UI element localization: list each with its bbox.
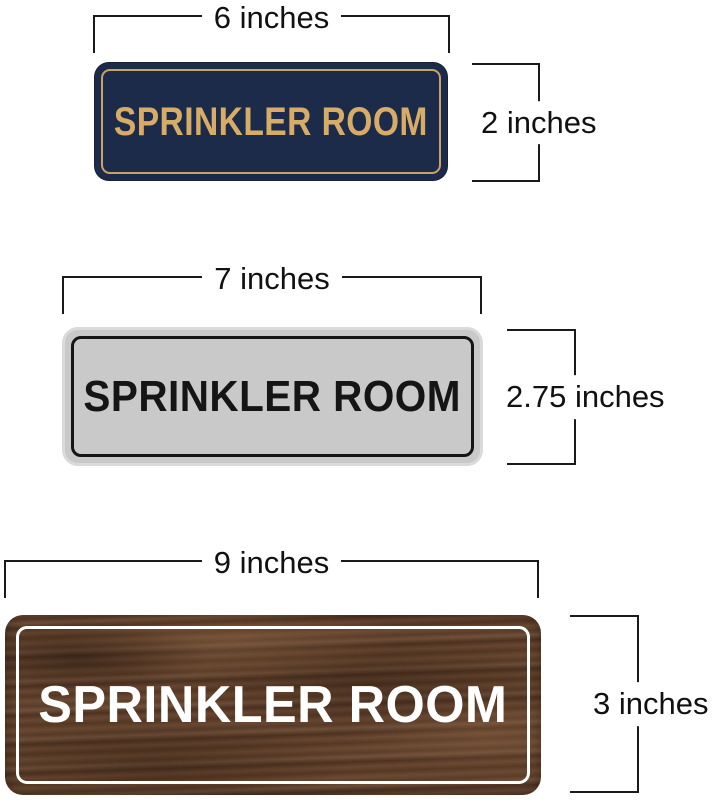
dimension-tick [448, 15, 450, 53]
walnut-wood-sign: SPRINKLER ROOM [5, 615, 541, 795]
dimension-tick [472, 180, 540, 182]
height-dimension-navy: 2 inches [472, 63, 540, 182]
sign-text-navy: SPRINKLER ROOM [114, 102, 428, 142]
height-label-wood: 3 inches [586, 682, 715, 726]
height-label-navy: 2 inches [474, 101, 603, 145]
dimension-tick [570, 791, 639, 793]
dimension-line [64, 276, 202, 278]
height-dimension-wood: 3 inches [570, 615, 639, 793]
sign-text-wood: SPRINKLER ROOM [38, 679, 507, 731]
product-dimension-diagram: 6 inches SPRINKLER ROOM 2 inches 7 inche… [0, 0, 722, 805]
dimension-tick [480, 276, 482, 314]
width-label-silver: 7 inches [202, 263, 341, 294]
dimension-line [95, 15, 202, 17]
dimension-tick [93, 15, 95, 53]
dimension-tick [4, 560, 6, 598]
dimension-line [342, 276, 480, 278]
width-dimension-silver: 7 inches [62, 276, 482, 314]
sign-text-silver: SPRINKLER ROOM [84, 375, 462, 419]
navy-gold-sign: SPRINKLER ROOM [95, 63, 447, 180]
width-dimension-navy: 6 inches [93, 15, 450, 53]
dimension-tick [507, 463, 576, 465]
dimension-tick [570, 615, 639, 617]
silver-black-sign: SPRINKLER ROOM [62, 327, 483, 466]
dimension-line [6, 560, 202, 562]
dimension-tick [62, 276, 64, 314]
width-label-navy: 6 inches [202, 2, 341, 33]
dimension-tick [472, 63, 540, 65]
dimension-tick [537, 560, 539, 598]
dimension-line [341, 15, 448, 17]
height-label-silver: 2.75 inches [499, 375, 672, 419]
height-dimension-silver: 2.75 inches [507, 329, 576, 465]
dimension-line [341, 560, 537, 562]
width-label-wood: 9 inches [202, 547, 341, 578]
dimension-tick [507, 329, 576, 331]
width-dimension-wood: 9 inches [4, 560, 539, 598]
